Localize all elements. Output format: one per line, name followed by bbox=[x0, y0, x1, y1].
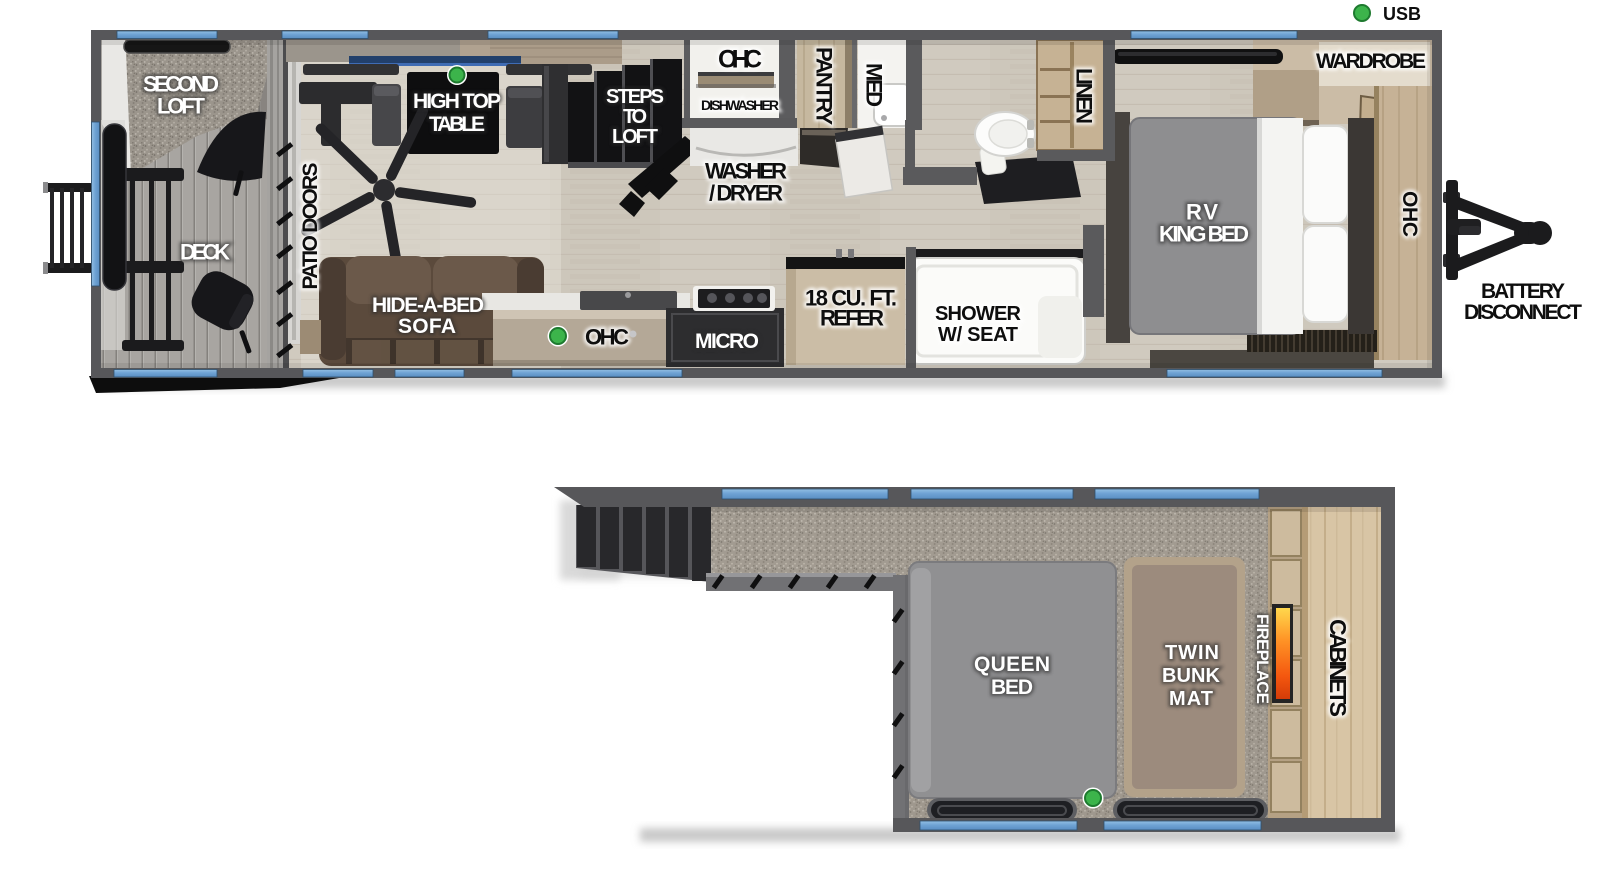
svg-text:BED: BED bbox=[991, 676, 1033, 699]
svg-text:LINEN: LINEN bbox=[1072, 68, 1097, 124]
svg-text:/ DRYER: / DRYER bbox=[709, 180, 783, 205]
svg-text:OHC: OHC bbox=[718, 46, 762, 74]
svg-text:OHC: OHC bbox=[585, 324, 629, 349]
svg-text:TABLE: TABLE bbox=[429, 113, 485, 136]
svg-text:MICRO: MICRO bbox=[695, 330, 759, 353]
svg-text:QUEEN: QUEEN bbox=[974, 653, 1050, 676]
svg-text:OHC: OHC bbox=[1398, 191, 1421, 237]
svg-text:DECK: DECK bbox=[180, 239, 230, 264]
svg-text:HIDE-A-BED: HIDE-A-BED bbox=[372, 294, 484, 317]
svg-text:MED: MED bbox=[862, 63, 887, 107]
svg-text:LOFT: LOFT bbox=[157, 93, 206, 118]
svg-text:USB: USB bbox=[1383, 4, 1421, 24]
svg-text:DISHWASHER: DISHWASHER bbox=[701, 97, 779, 113]
svg-text:PATIO DOORS: PATIO DOORS bbox=[299, 163, 322, 290]
svg-text:STEPS: STEPS bbox=[606, 86, 664, 108]
svg-text:HIGH TOP: HIGH TOP bbox=[413, 90, 501, 113]
svg-text:DISCONNECT: DISCONNECT bbox=[1464, 301, 1582, 324]
svg-text:WARDROBE: WARDROBE bbox=[1316, 50, 1426, 73]
svg-text:MAT: MAT bbox=[1169, 688, 1213, 710]
svg-text:PANTRY: PANTRY bbox=[812, 47, 837, 125]
svg-text:W/ SEAT: W/ SEAT bbox=[938, 324, 1018, 346]
svg-text:TO: TO bbox=[623, 106, 647, 128]
svg-text:REFER: REFER bbox=[820, 305, 884, 330]
svg-text:BUNK: BUNK bbox=[1162, 665, 1221, 687]
svg-text:CABINETS: CABINETS bbox=[1325, 619, 1351, 717]
svg-text:TWIN: TWIN bbox=[1165, 642, 1219, 664]
svg-text:LOFT: LOFT bbox=[612, 126, 658, 148]
svg-text:FIREPLACE: FIREPLACE bbox=[1253, 614, 1272, 704]
svg-text:BATTERY: BATTERY bbox=[1481, 280, 1565, 303]
svg-text:SOFA: SOFA bbox=[398, 315, 456, 338]
svg-text:SHOWER: SHOWER bbox=[935, 303, 1022, 325]
svg-text:KING BED: KING BED bbox=[1159, 221, 1249, 246]
